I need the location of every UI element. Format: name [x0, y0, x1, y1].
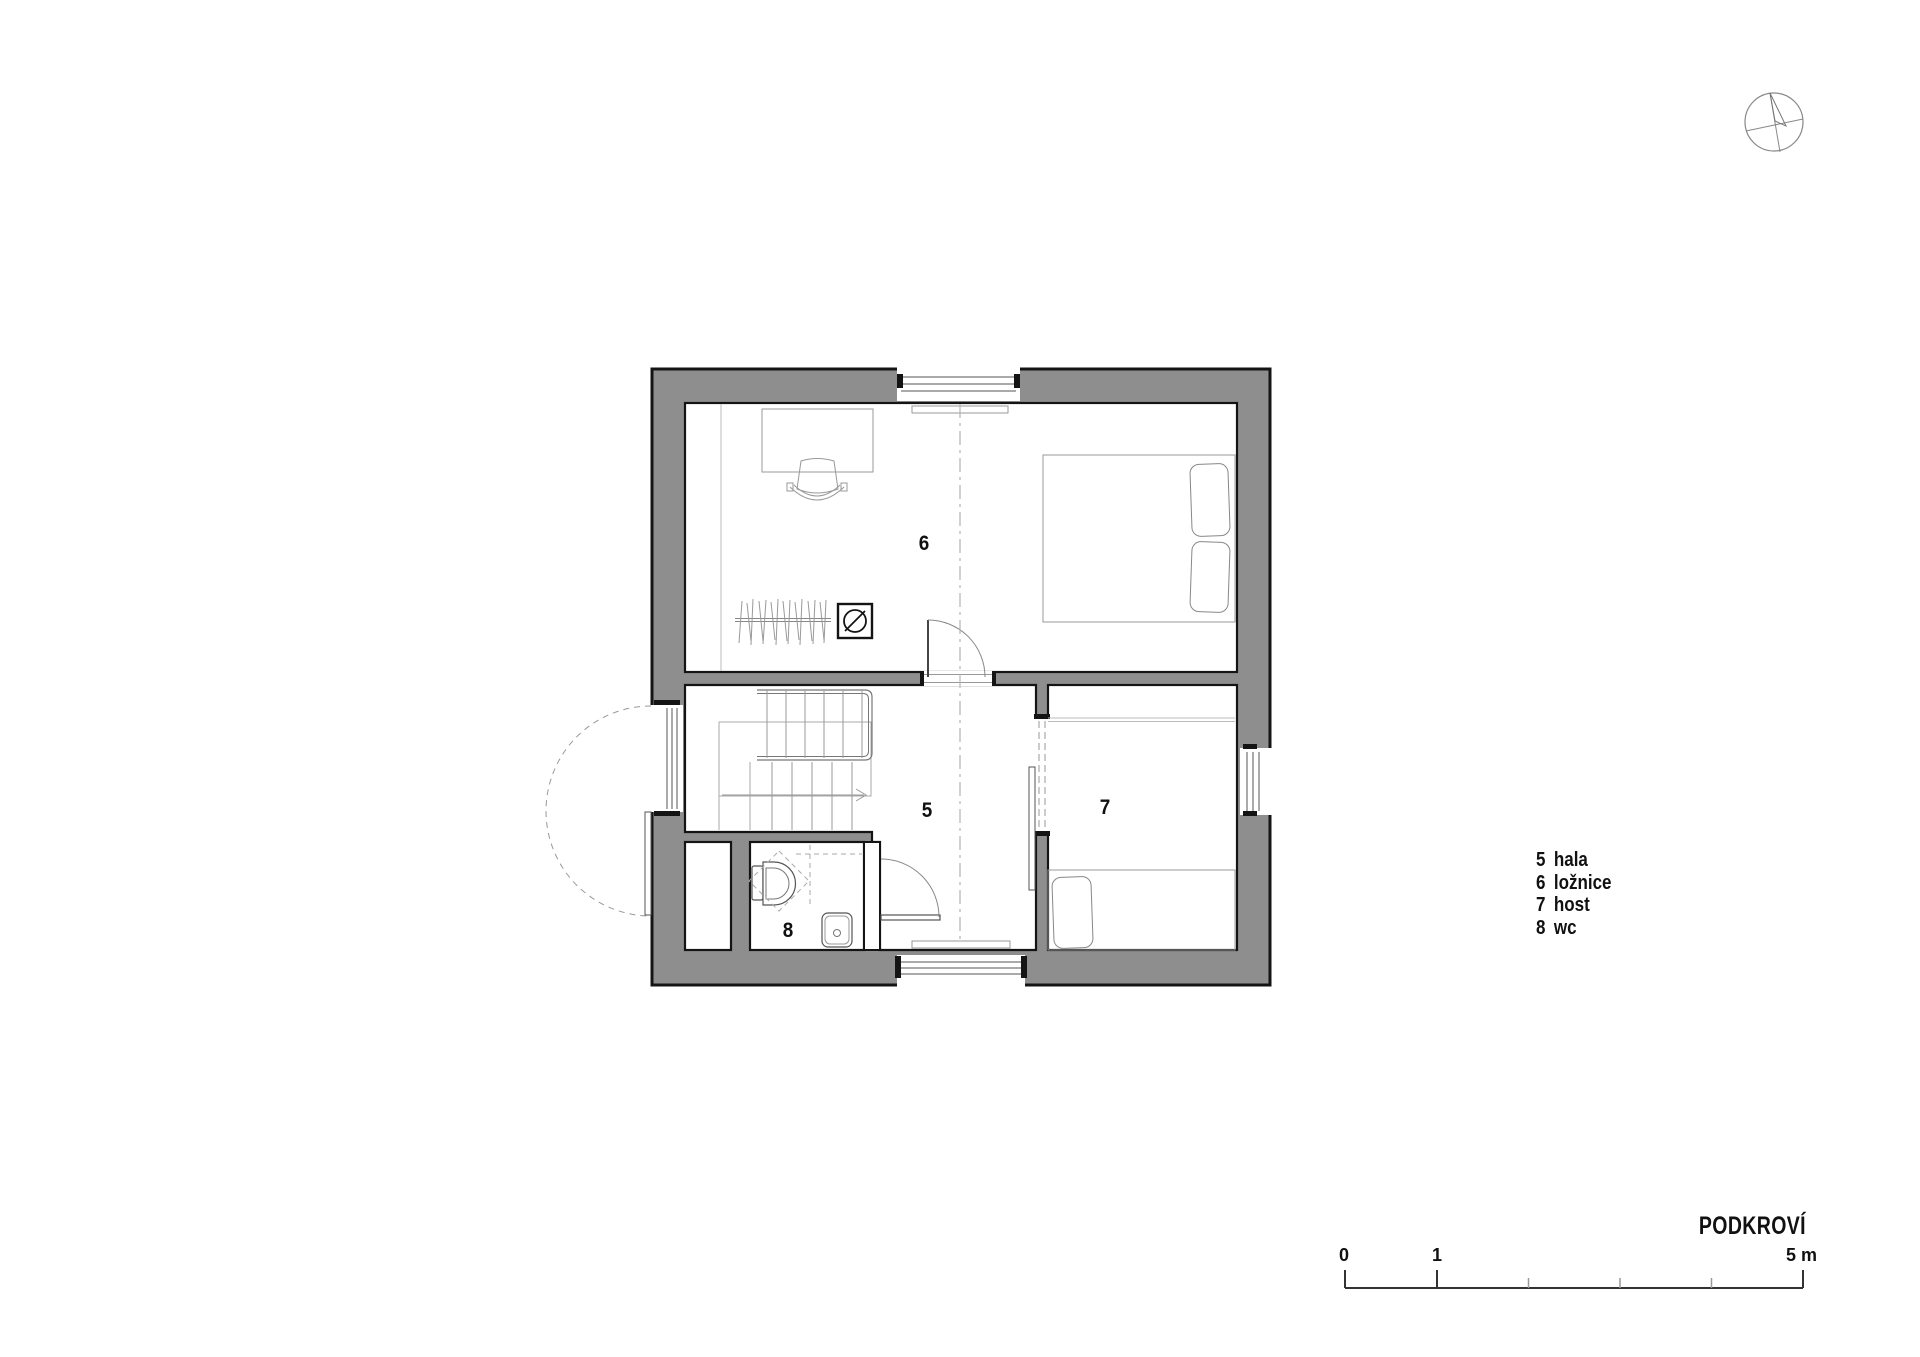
legend-name: wc [1554, 917, 1577, 939]
wc-fixtures [749, 845, 862, 947]
window-bottom [895, 941, 1027, 987]
door-wc [864, 842, 940, 950]
legend-row: 6ložnice [1536, 872, 1611, 895]
window-sill-board [912, 941, 1010, 948]
door-leaf [881, 915, 940, 920]
pillow-icon [1052, 876, 1093, 948]
window-top [897, 366, 1020, 413]
balcony-door-leaf [645, 812, 651, 915]
legend-name: ložnice [1554, 872, 1612, 894]
legend-name: host [1554, 894, 1590, 916]
legend-number: 6 [1536, 872, 1547, 895]
north-arrow-icon [1745, 93, 1803, 152]
toilet-icon [752, 862, 796, 905]
room6-furniture [721, 404, 1235, 671]
legend-name: hala [1554, 849, 1588, 871]
room7-furniture [1048, 718, 1235, 950]
sink-icon [822, 913, 852, 947]
chimney-icon [838, 604, 872, 638]
plan-title: PODKROVÍ [1645, 1212, 1806, 1241]
clothes-rack-icon [735, 599, 831, 645]
door-room6 [920, 620, 996, 686]
scale-label-zero: 0 [1339, 1245, 1349, 1266]
office-chair-icon [787, 459, 847, 501]
door-swing-arc [928, 620, 985, 677]
legend-number: 8 [1536, 917, 1547, 940]
scale-label-one: 1 [1432, 1245, 1442, 1266]
room-legend: 5hala 6ložnice 7host 8wc [1536, 849, 1611, 939]
door-frame [864, 842, 880, 950]
room-label-guest: 7 [1100, 796, 1111, 820]
pillow-icon [1190, 463, 1230, 536]
room-label-wc: 8 [783, 919, 794, 943]
staircase [719, 690, 872, 830]
scale-label-five: 5 m [1717, 1245, 1817, 1266]
legend-row: 5hala [1536, 849, 1611, 872]
desk-icon [762, 409, 873, 472]
legend-number: 7 [1536, 894, 1547, 917]
balcony-door-swing-arc [546, 706, 651, 916]
door-leaf [1029, 767, 1035, 890]
room-label-bedroom: 6 [919, 532, 930, 556]
legend-row: 7host [1536, 894, 1611, 917]
pillow-icon [1190, 541, 1230, 612]
door-swing-arc [881, 859, 939, 917]
legend-number: 5 [1536, 849, 1547, 872]
legend-row: 8wc [1536, 917, 1611, 940]
floor-plan-page: { "meta": { "title": "PODKROVÍ" }, "room… [0, 0, 1920, 1357]
stair-railing [757, 690, 872, 760]
single-bed-icon [1048, 870, 1235, 950]
room-label-hall: 5 [922, 799, 933, 823]
floor-plan-drawing [0, 0, 1920, 1357]
scale-bar [1345, 1270, 1803, 1288]
double-bed-icon [1043, 455, 1235, 622]
window-right [1240, 744, 1273, 816]
